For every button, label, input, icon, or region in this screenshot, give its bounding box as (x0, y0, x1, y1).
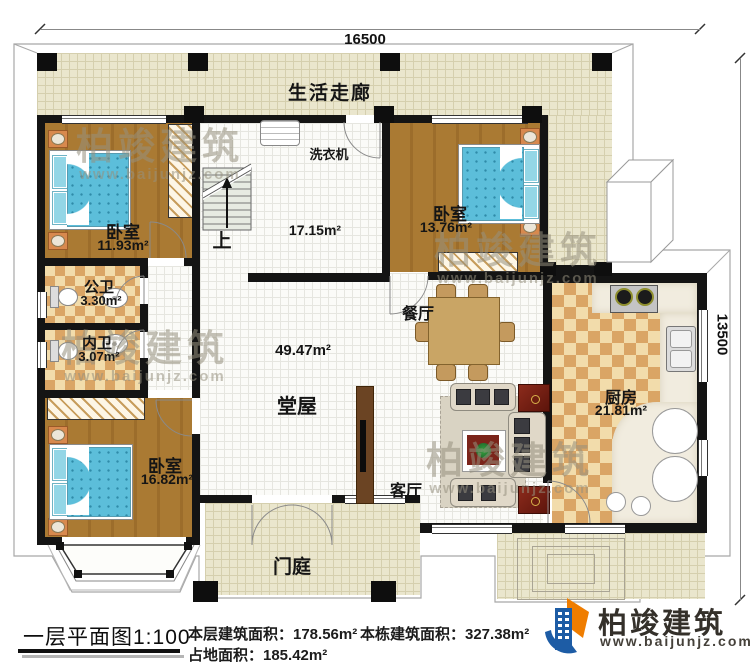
up-label: 上 (210, 226, 234, 253)
bay-window (48, 542, 200, 590)
public-bath-area: 3.30m² (68, 293, 134, 308)
stat-building-area: 本栋建筑面积：327.38m² (360, 623, 529, 644)
plan-title-underline (18, 649, 180, 653)
brand-logo-icon (541, 596, 593, 658)
porch-name: 门庭 (262, 552, 322, 579)
stair-hall-area: 17.15m² (281, 222, 349, 238)
dim-line-top (40, 29, 700, 30)
washer-label: 洗衣机 (298, 144, 360, 163)
brand-url: www.baijunjz.com (600, 633, 750, 649)
dining-name: 餐厅 (394, 300, 442, 324)
living-name: 客厅 (382, 477, 430, 501)
dim-right-label: 13500 (714, 300, 731, 370)
stat-floor-area: 本层建筑面积：178.56m² (188, 623, 357, 644)
plan-title: 一层平面图1:100 (23, 621, 191, 651)
chimney (607, 160, 673, 262)
kitchen-area: 21.81m² (586, 402, 656, 418)
stat-land-area: 占地面积：185.42m² (188, 644, 327, 662)
stairs (203, 164, 251, 230)
ensuite-bath-area: 3.07m² (66, 349, 132, 364)
dim-top-label: 16500 (320, 31, 410, 48)
hall-area: 49.47m² (262, 342, 344, 359)
hall-name: 堂屋 (262, 390, 332, 419)
bedroom-bl-area: 16.82m² (124, 471, 210, 487)
bedroom-tr-area: 13.76m² (403, 219, 489, 235)
plan-linework (0, 0, 750, 662)
plan-title-underline-shadow (22, 655, 184, 658)
floor-plan-canvas: 16500 13500 柏竣建筑 www.baijunjz.com 柏竣建筑 w… (0, 0, 750, 662)
bedroom-tl-area: 11.93m² (84, 237, 162, 253)
corridor-label: 生活走廊 (285, 78, 375, 105)
dim-line-right (740, 58, 741, 600)
